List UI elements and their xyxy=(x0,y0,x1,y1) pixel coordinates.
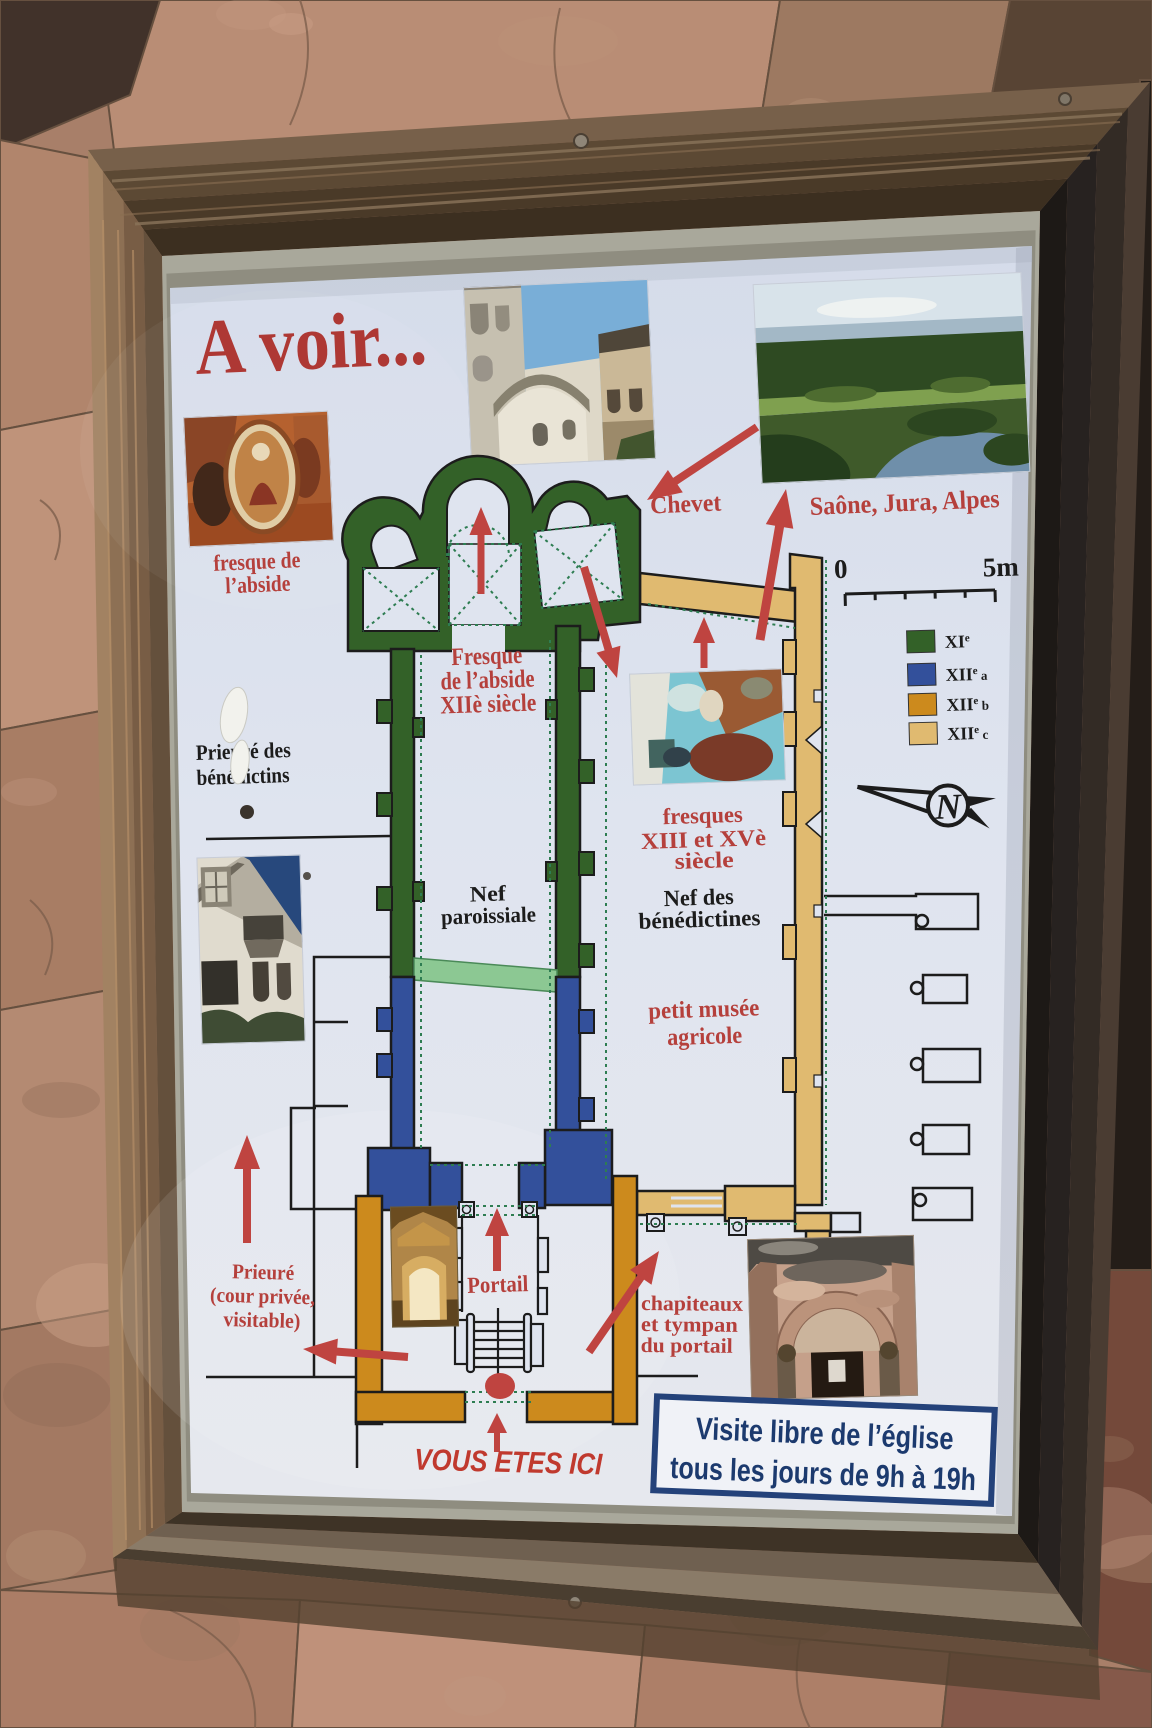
svg-text:siècle: siècle xyxy=(674,847,734,874)
svg-text:Prieuré: Prieuré xyxy=(232,1259,295,1285)
svg-text:XIIè siècle: XIIè siècle xyxy=(440,689,537,719)
svg-text:(cour privée,: (cour privée, xyxy=(210,1283,316,1310)
svg-text:agricole: agricole xyxy=(667,1023,743,1051)
svg-text:0: 0 xyxy=(834,554,848,584)
svg-text:5m: 5m xyxy=(982,552,1019,583)
svg-text:bénédictines: bénédictines xyxy=(638,905,761,934)
svg-text:visitable): visitable) xyxy=(223,1307,301,1333)
svg-text:fresques: fresques xyxy=(662,802,743,830)
svg-text:paroissiale: paroissiale xyxy=(441,902,537,930)
svg-text:petit musée: petit musée xyxy=(648,995,760,1024)
svg-text:Portail: Portail xyxy=(467,1271,529,1298)
svg-text:du portail: du portail xyxy=(641,1333,733,1358)
svg-text:VOUS ETES ICI: VOUS ETES ICI xyxy=(414,1444,603,1482)
svg-text:N: N xyxy=(934,786,964,827)
svg-text:l’abside: l’abside xyxy=(225,571,291,599)
svg-text:A voir...: A voir... xyxy=(193,295,429,392)
